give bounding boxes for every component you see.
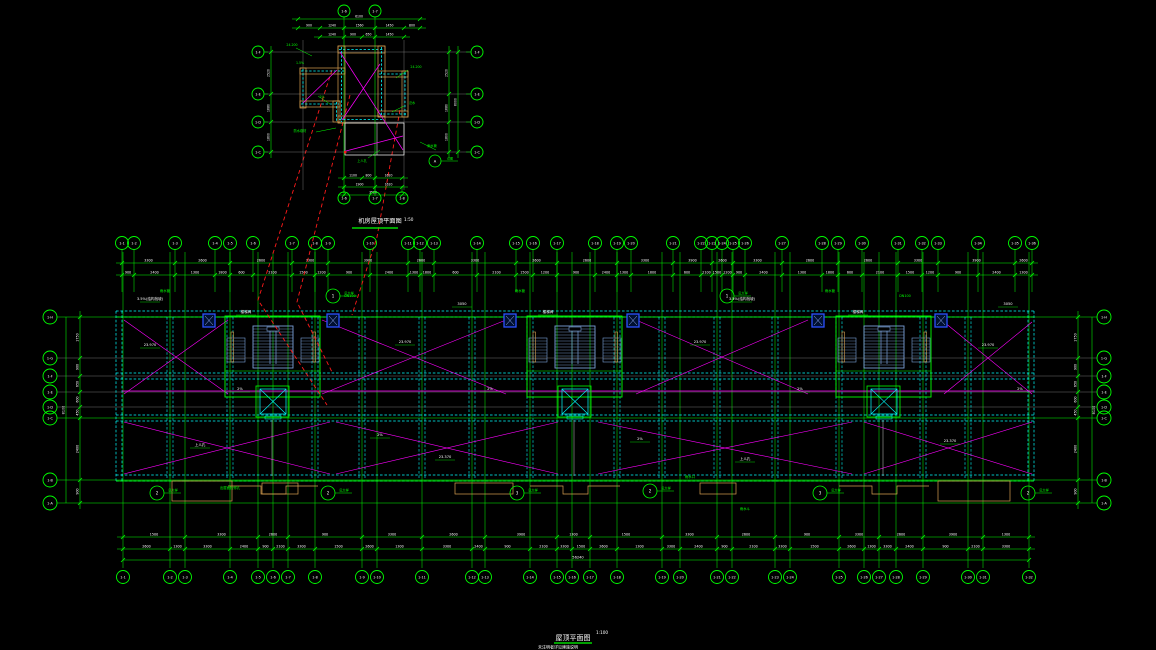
main-scale: 1:100 (596, 630, 608, 635)
title-layer: 机房屋顶平面图 1:50 屋顶平面图 1:100 未注明者详见建施说明 (0, 0, 1156, 650)
cad-viewport: 3300260026003300390026003300260026003300… (0, 0, 1156, 650)
detail-title: 机房屋顶平面图 (358, 217, 401, 225)
drawing-note: 未注明者详见建施说明 (538, 644, 578, 650)
main-title: 屋顶平面图 (556, 634, 591, 642)
detail-scale: 1:50 (404, 217, 414, 222)
